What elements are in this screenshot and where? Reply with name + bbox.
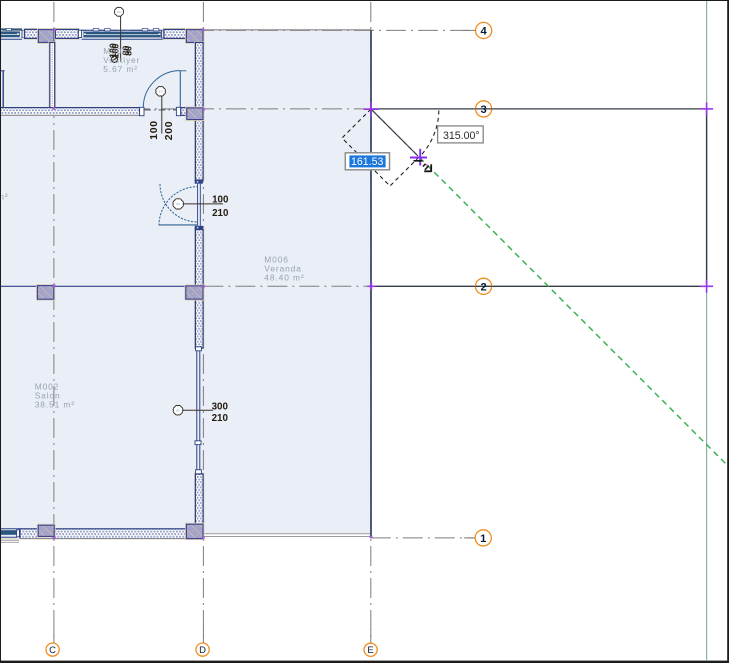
svg-text:210: 210: [212, 413, 229, 424]
svg-text:161.53: 161.53: [351, 156, 384, 168]
svg-text:100: 100: [149, 120, 160, 139]
svg-text:5.67 m²: 5.67 m²: [103, 64, 138, 74]
svg-text:K0: K0: [117, 10, 121, 14]
svg-text:K0: K0: [159, 90, 163, 94]
svg-text:315.00°: 315.00°: [443, 130, 480, 142]
svg-text:38.51 m²: 38.51 m²: [35, 400, 75, 410]
svg-text:210: 210: [212, 208, 229, 219]
svg-text:C: C: [49, 645, 56, 656]
svg-text:48.40 m²: 48.40 m²: [264, 272, 304, 282]
svg-text:m²: m²: [0, 192, 9, 202]
svg-text:K0: K0: [176, 408, 180, 412]
svg-text:300: 300: [212, 401, 229, 412]
svg-text:200: 200: [164, 121, 175, 140]
svg-text:4: 4: [480, 26, 487, 38]
svg-text:2: 2: [480, 281, 486, 293]
svg-text:E: E: [367, 645, 373, 656]
svg-text:D: D: [199, 645, 206, 656]
svg-text:3: 3: [480, 104, 486, 116]
svg-text:K0: K0: [176, 202, 180, 206]
svg-text:100: 100: [212, 195, 229, 206]
svg-text:1: 1: [480, 533, 486, 545]
